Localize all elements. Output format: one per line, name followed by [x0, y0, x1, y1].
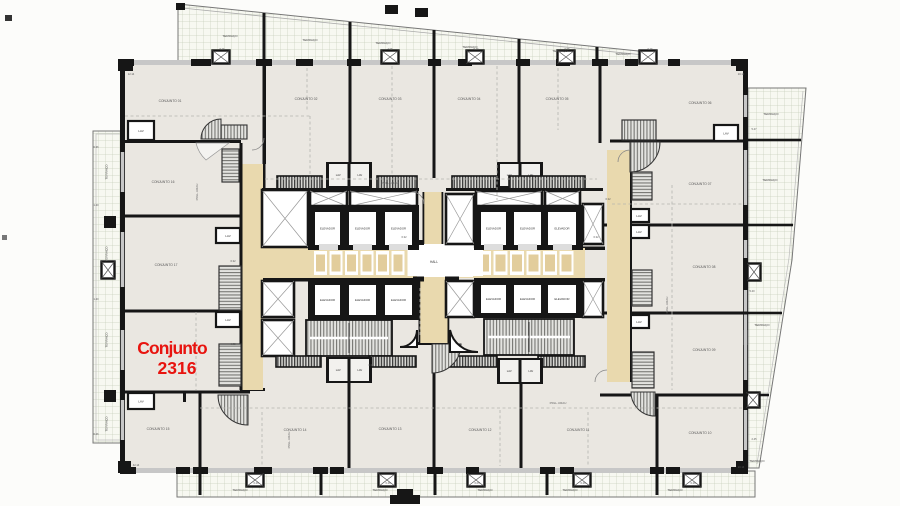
- svg-text:1.40: 1.40: [93, 297, 99, 301]
- svg-text:LAV: LAV: [336, 173, 341, 177]
- svg-text:LAV: LAV: [636, 214, 641, 218]
- svg-text:12.14: 12.14: [128, 72, 135, 76]
- svg-text:TERRAÇO: TERRAÇO: [105, 332, 109, 348]
- svg-text:10.14: 10.14: [738, 72, 745, 76]
- svg-text:LAV: LAV: [225, 234, 230, 238]
- svg-text:ELEVADOR: ELEVADOR: [520, 227, 535, 231]
- svg-text:ELEVADOR: ELEVADOR: [486, 227, 501, 231]
- svg-text:6.26: 6.26: [473, 47, 479, 51]
- svg-text:CONJUNTO 08: CONJUNTO 08: [693, 265, 716, 269]
- svg-text:PRLL.URAU: PRLL.URAU: [287, 432, 291, 449]
- svg-text:6.26: 6.26: [219, 47, 225, 51]
- svg-text:ELEVADOR: ELEVADOR: [520, 297, 535, 301]
- svg-text:6.05: 6.05: [564, 47, 570, 51]
- svg-text:LAV: LAV: [528, 369, 533, 373]
- svg-text:TERRAÇO: TERRAÇO: [302, 38, 318, 42]
- svg-text:1.40: 1.40: [93, 203, 99, 207]
- svg-text:CONJUNTO 15: CONJUNTO 15: [147, 427, 170, 431]
- svg-text:6.26: 6.26: [385, 481, 391, 485]
- svg-text:PRLL.URAU: PRLL.URAU: [550, 401, 567, 405]
- svg-text:CONJUNTO 02: CONJUNTO 02: [295, 97, 318, 101]
- svg-text:CONJUNTO 11: CONJUNTO 11: [567, 428, 590, 432]
- svg-text:CONJUNTO 17: CONJUNTO 17: [155, 263, 178, 267]
- svg-text:CONJUNTO 12: CONJUNTO 12: [469, 428, 492, 432]
- svg-text:6.26: 6.26: [690, 481, 696, 485]
- svg-text:TERRAÇO: TERRAÇO: [763, 112, 779, 116]
- svg-text:ELEVADOR: ELEVADOR: [355, 227, 370, 231]
- svg-text:TERRAÇO: TERRAÇO: [222, 34, 238, 38]
- svg-text:6.26: 6.26: [647, 47, 653, 51]
- svg-text:LAV: LAV: [225, 318, 230, 322]
- svg-text:CONJUNTO 04: CONJUNTO 04: [458, 97, 481, 101]
- svg-text:TERRAÇO: TERRAÇO: [105, 246, 109, 262]
- svg-text:TERRAÇO: TERRAÇO: [372, 488, 388, 492]
- svg-text:TERRAÇO: TERRAÇO: [562, 488, 578, 492]
- svg-text:ELEVADOR: ELEVADOR: [391, 298, 406, 302]
- svg-text:CONJUNTO 13: CONJUNTO 13: [379, 427, 402, 431]
- svg-text:ELEVADOR: ELEVADOR: [554, 227, 569, 231]
- svg-text:6.32: 6.32: [230, 342, 236, 346]
- svg-text:6.36: 6.36: [93, 145, 99, 149]
- svg-text:2316: 2316: [158, 358, 197, 378]
- svg-text:PRLL.URAU: PRLL.URAU: [665, 297, 669, 314]
- svg-text:CONJUNTO 01: CONJUNTO 01: [159, 99, 182, 103]
- svg-text:TERRAÇO: TERRAÇO: [105, 164, 109, 180]
- svg-text:LAV: LAV: [636, 320, 641, 324]
- svg-text:HALL: HALL: [430, 260, 438, 264]
- svg-text:CONJUNTO 06: CONJUNTO 06: [689, 101, 712, 105]
- svg-text:PRLL.URAU: PRLL.URAU: [382, 181, 399, 185]
- svg-text:6.26: 6.26: [253, 481, 259, 485]
- svg-text:TERRAÇO: TERRAÇO: [232, 488, 248, 492]
- svg-text:CONJUNTO 14: CONJUNTO 14: [284, 428, 307, 432]
- svg-text:6.32: 6.32: [605, 197, 611, 201]
- svg-text:ELEVADOR: ELEVADOR: [486, 297, 501, 301]
- svg-text:LAV: LAV: [336, 368, 341, 372]
- svg-text:5.40: 5.40: [749, 289, 755, 293]
- svg-text:LAV: LAV: [357, 173, 362, 177]
- svg-text:TERRAÇO: TERRAÇO: [375, 41, 391, 45]
- svg-text:LAV: LAV: [723, 131, 728, 135]
- svg-text:CONJUNTO 03: CONJUNTO 03: [379, 97, 402, 101]
- svg-text:5.47: 5.47: [751, 127, 757, 131]
- svg-text:10.14: 10.14: [738, 465, 745, 469]
- svg-text:CONJUNTO 16: CONJUNTO 16: [152, 180, 175, 184]
- svg-text:6.32: 6.32: [401, 235, 407, 239]
- svg-text:Conjunto: Conjunto: [137, 338, 207, 358]
- svg-text:TERRAÇO: TERRAÇO: [762, 178, 778, 182]
- svg-text:CONJUNTO 07: CONJUNTO 07: [689, 182, 712, 186]
- svg-text:LAV: LAV: [636, 230, 641, 234]
- svg-text:ELEVADOR: ELEVADOR: [554, 297, 569, 301]
- svg-text:LAV: LAV: [507, 369, 512, 373]
- svg-text:TERRAÇO: TERRAÇO: [105, 416, 109, 432]
- svg-text:CONJUNTO 10: CONJUNTO 10: [689, 431, 712, 435]
- svg-text:TERRAÇO: TERRAÇO: [667, 488, 683, 492]
- svg-text:TERRAÇO: TERRAÇO: [477, 488, 493, 492]
- svg-text:6.32: 6.32: [230, 259, 236, 263]
- svg-text:6.32: 6.32: [368, 363, 374, 367]
- svg-text:4.05: 4.05: [387, 47, 393, 51]
- svg-text:ELEVADOR: ELEVADOR: [320, 227, 335, 231]
- svg-text:6.05: 6.05: [474, 481, 480, 485]
- svg-text:LAV: LAV: [138, 129, 143, 133]
- svg-text:42.14: 42.14: [133, 463, 140, 467]
- svg-text:LAV: LAV: [138, 399, 143, 403]
- svg-text:6.32: 6.32: [593, 235, 599, 239]
- svg-text:6.26: 6.26: [93, 432, 99, 436]
- svg-text:PRLL.URAU: PRLL.URAU: [195, 184, 199, 201]
- svg-text:TERRAÇO: TERRAÇO: [749, 459, 765, 463]
- svg-text:CONJUNTO 05: CONJUNTO 05: [546, 97, 569, 101]
- svg-text:6.26: 6.26: [580, 481, 586, 485]
- svg-text:ELEVADOR: ELEVADOR: [355, 298, 370, 302]
- svg-text:TERRAÇO: TERRAÇO: [754, 323, 770, 327]
- svg-text:TERRAÇO: TERRAÇO: [615, 52, 631, 56]
- svg-text:ELEVADOR: ELEVADOR: [391, 227, 406, 231]
- svg-text:CONJUNTO 09: CONJUNTO 09: [693, 348, 716, 352]
- svg-text:2.45: 2.45: [751, 437, 757, 441]
- svg-text:LAV: LAV: [357, 368, 362, 372]
- svg-text:ELEVADOR: ELEVADOR: [320, 298, 335, 302]
